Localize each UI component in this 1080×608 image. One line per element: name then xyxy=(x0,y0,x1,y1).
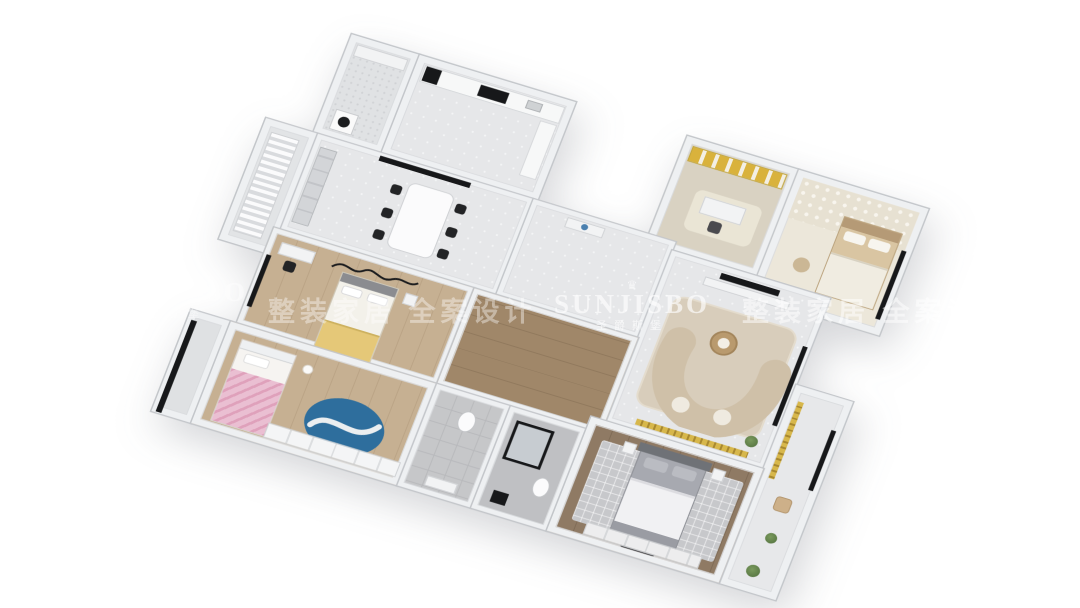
dining-chair xyxy=(444,226,458,238)
teddy-bear xyxy=(301,363,315,375)
bedroom2-window xyxy=(247,254,272,307)
bath-cabinet xyxy=(489,490,509,506)
balcony-plant xyxy=(764,532,779,545)
dining-chair xyxy=(436,248,450,260)
screenshot-canvas: ♛ SUNJISBO 圣爵斯堡 整装家居 全案设计 ♛ SUNJISBO 圣爵斯… xyxy=(0,0,1080,608)
guest-pouf xyxy=(791,255,813,274)
bedroom2-desk xyxy=(278,242,317,264)
washer-door xyxy=(336,115,351,128)
guest-bed xyxy=(814,216,903,310)
coffee-table-top xyxy=(716,337,731,350)
shower-enclosure xyxy=(502,420,555,470)
dining-chair xyxy=(372,228,386,240)
toilet xyxy=(529,476,553,500)
bedroom2-chair xyxy=(282,260,297,273)
dining-chair xyxy=(453,203,467,215)
balcony-plant xyxy=(744,563,762,579)
floor-plan xyxy=(151,20,928,600)
balcony-chair xyxy=(772,495,794,514)
master-pillow xyxy=(643,457,670,474)
balcony-window xyxy=(808,430,836,491)
dining-chair xyxy=(380,207,394,219)
study-bookshelf xyxy=(687,146,787,190)
master-pillow xyxy=(671,465,698,482)
kitchen-counter-side xyxy=(519,120,558,180)
toilet xyxy=(454,409,479,434)
kids-balcony-window xyxy=(156,320,197,413)
kids-bed xyxy=(210,339,297,437)
bath-vanity xyxy=(424,475,458,494)
dining-chair xyxy=(389,183,403,195)
bedroom2-nightstand xyxy=(402,293,419,308)
